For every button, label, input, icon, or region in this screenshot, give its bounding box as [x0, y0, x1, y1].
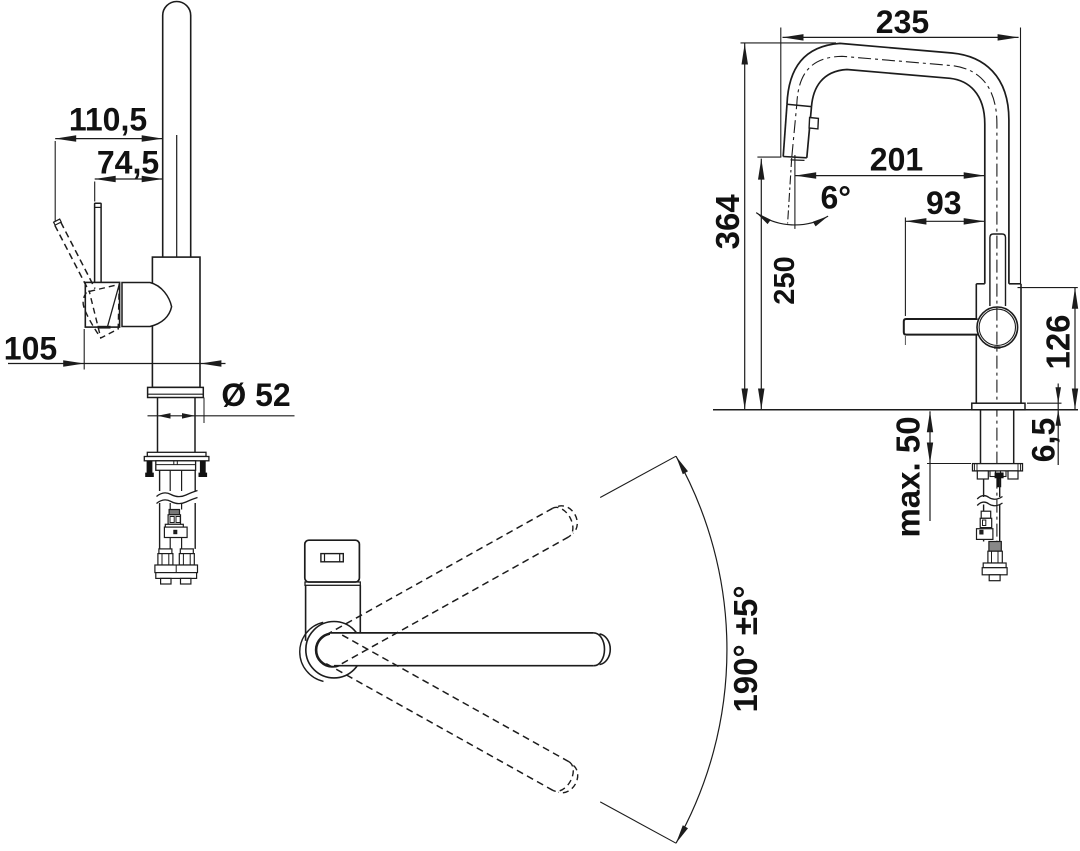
- svg-text:110,5: 110,5: [69, 102, 147, 138]
- svg-text:190° ±5°: 190° ±5°: [727, 585, 764, 712]
- svg-text:6°: 6°: [821, 180, 852, 216]
- svg-text:93: 93: [926, 185, 962, 221]
- svg-text:126: 126: [1040, 314, 1077, 369]
- svg-text:364: 364: [709, 194, 746, 250]
- svg-text:201: 201: [870, 142, 923, 178]
- svg-text:235: 235: [876, 4, 929, 40]
- svg-text:max. 50: max. 50: [890, 416, 927, 537]
- svg-text:74,5: 74,5: [97, 144, 159, 180]
- svg-text:250: 250: [769, 256, 801, 304]
- svg-text:Ø 52: Ø 52: [221, 377, 290, 413]
- svg-text:105: 105: [4, 331, 57, 367]
